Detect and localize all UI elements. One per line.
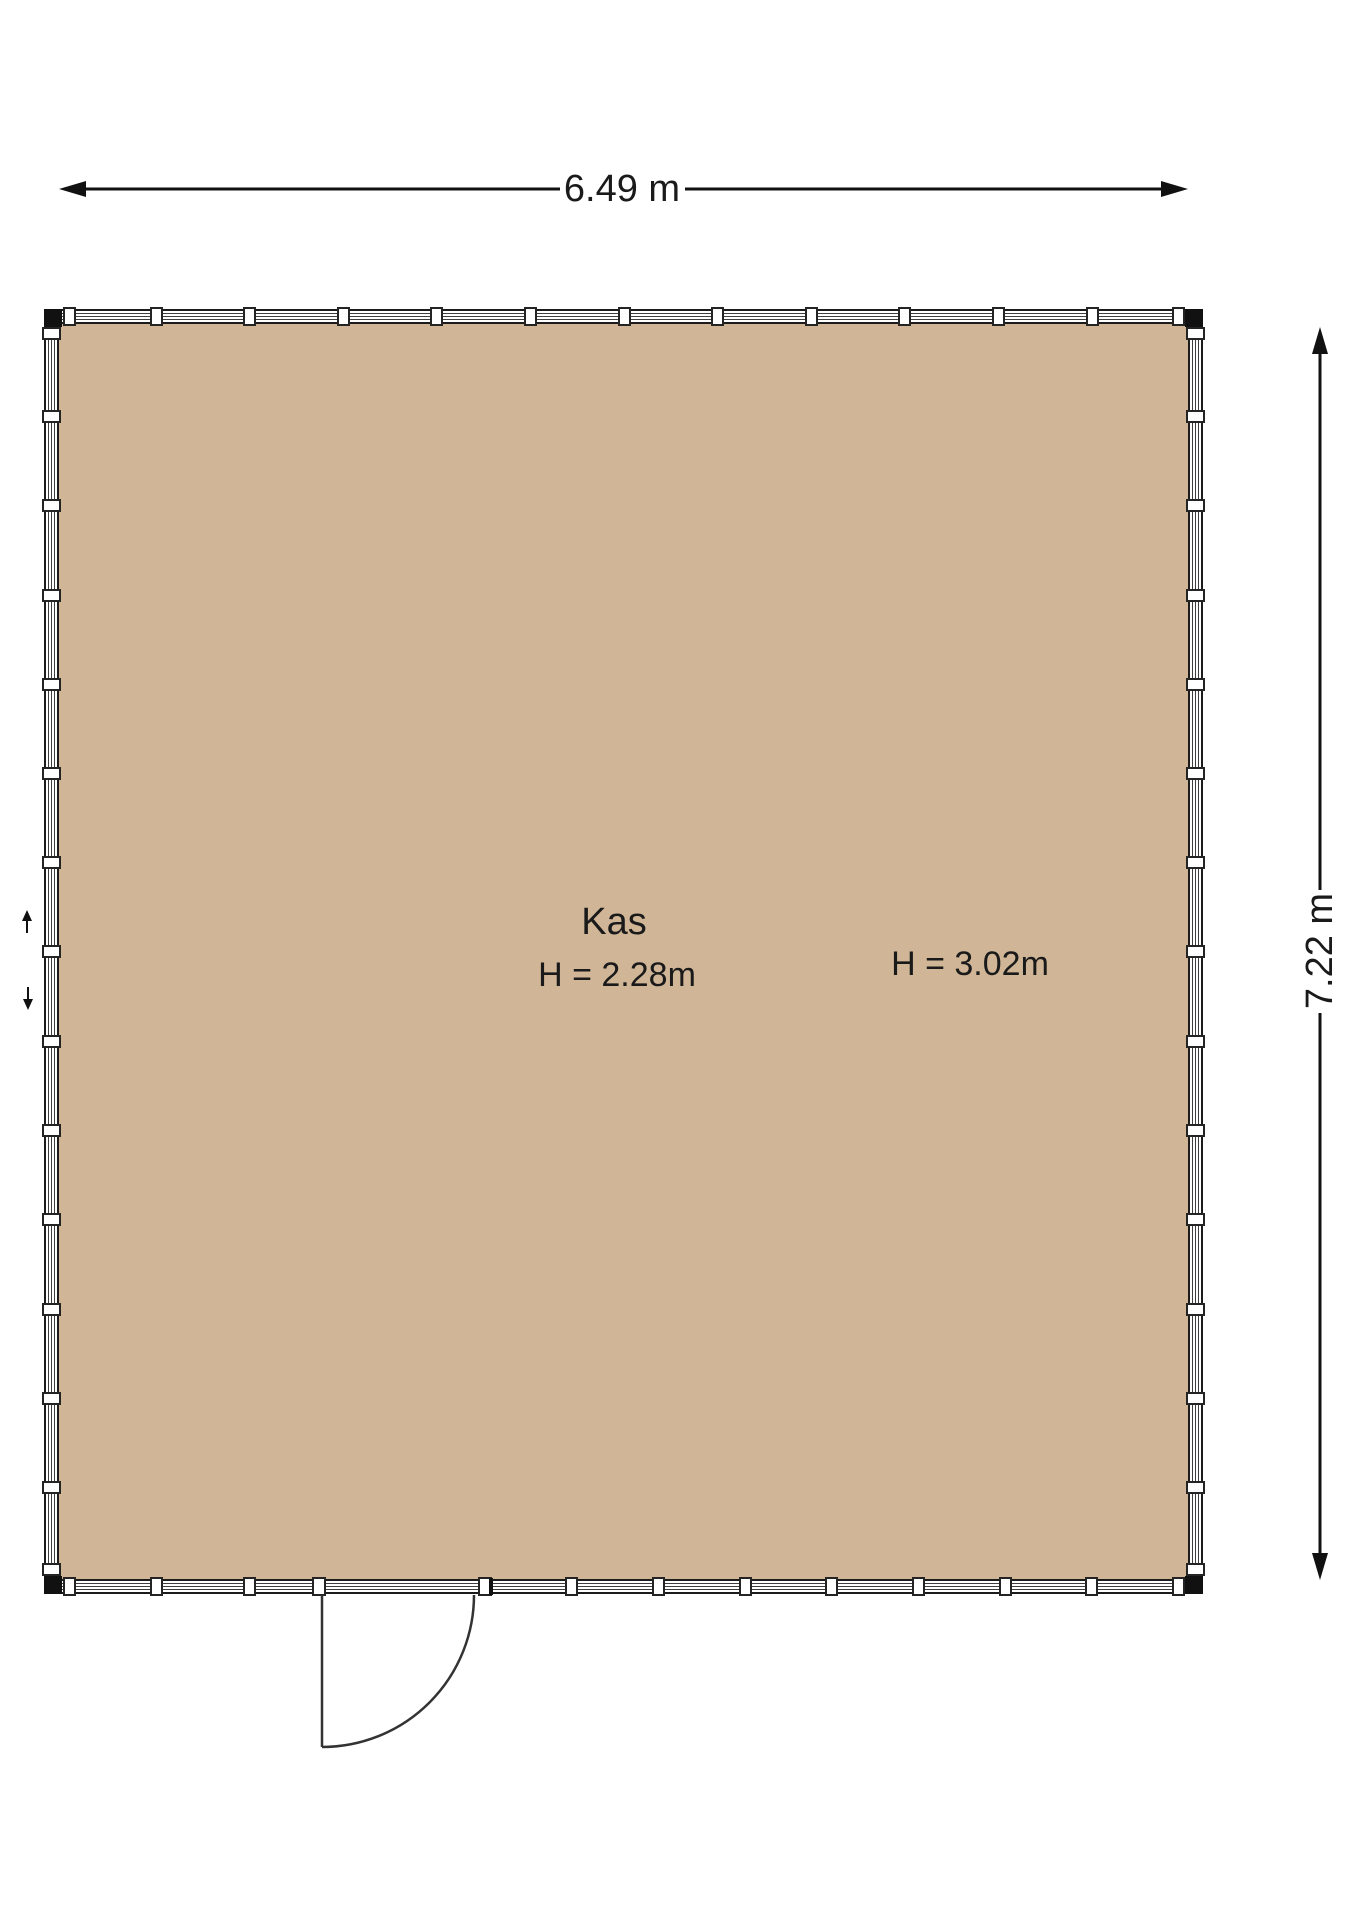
window-mullion bbox=[42, 1213, 61, 1226]
corner-post-ne bbox=[1185, 309, 1203, 327]
window-mullion bbox=[1186, 1303, 1205, 1316]
window-mullion bbox=[430, 307, 443, 326]
window-mullion bbox=[825, 1577, 838, 1596]
window-mullion bbox=[42, 1392, 61, 1405]
window-mullion bbox=[42, 678, 61, 691]
corner-post-se bbox=[1185, 1576, 1203, 1594]
window-mullion bbox=[243, 307, 256, 326]
window-mullion bbox=[337, 307, 350, 326]
window-mullion bbox=[63, 1577, 76, 1596]
window-mullion bbox=[711, 307, 724, 326]
window-mullion bbox=[42, 499, 61, 512]
window-mullion bbox=[1186, 678, 1205, 691]
window-mullion bbox=[999, 1577, 1012, 1596]
window-mullion bbox=[150, 307, 163, 326]
door-jamb-left bbox=[312, 1577, 326, 1596]
window-mullion bbox=[42, 589, 61, 602]
door-swing bbox=[322, 1595, 474, 1747]
window-mullion bbox=[1186, 1213, 1205, 1226]
window-mullion bbox=[618, 307, 631, 326]
window-mullion bbox=[898, 307, 911, 326]
window-mullion bbox=[42, 767, 61, 780]
width-dimension-label: 6.49 m bbox=[522, 168, 722, 210]
window-mullion bbox=[42, 1563, 61, 1576]
room-height-label-primary: H = 2.28m bbox=[517, 958, 717, 992]
corner-post-nw bbox=[44, 309, 62, 327]
window-mullion bbox=[1186, 589, 1205, 602]
arrow-up-icon bbox=[1312, 327, 1328, 354]
height-dimension-label: 7.22 m bbox=[1299, 851, 1341, 1051]
window-mullion bbox=[42, 1124, 61, 1137]
room-name-label: Kas bbox=[514, 901, 714, 943]
arrow-right-icon bbox=[1161, 181, 1188, 197]
window-mullion bbox=[1186, 767, 1205, 780]
floorplan-canvas: 6.49 m 7.22 m Kas H = 2.28m H = 3.02m bbox=[0, 0, 1358, 1920]
window-mullion bbox=[42, 856, 61, 869]
window-mullion bbox=[1172, 1577, 1185, 1596]
window-mullion bbox=[1186, 1563, 1205, 1576]
corner-post-sw bbox=[44, 1576, 62, 1594]
window-mullion bbox=[1186, 1392, 1205, 1405]
door-strike bbox=[489, 1578, 493, 1595]
window-mullion bbox=[42, 327, 61, 340]
window-mullion bbox=[652, 1577, 665, 1596]
window-mullion bbox=[42, 1481, 61, 1494]
small-arrow-down-icon bbox=[23, 999, 33, 1010]
window-mullion bbox=[1186, 499, 1205, 512]
window-mullion bbox=[912, 1577, 925, 1596]
window-mullion bbox=[1186, 410, 1205, 423]
window-mullion bbox=[1186, 856, 1205, 869]
window-mullion bbox=[805, 307, 818, 326]
window-mullion bbox=[1186, 1124, 1205, 1137]
vent-direction-arrows bbox=[22, 910, 33, 1010]
window-mullion bbox=[1186, 327, 1205, 340]
small-arrow-up-icon bbox=[22, 910, 32, 921]
window-mullion bbox=[42, 1035, 61, 1048]
window-mullion bbox=[42, 410, 61, 423]
window-mullion bbox=[1086, 307, 1099, 326]
arrow-down-icon bbox=[1312, 1553, 1328, 1580]
window-mullion bbox=[243, 1577, 256, 1596]
window-mullion bbox=[1186, 1035, 1205, 1048]
window-mullion bbox=[565, 1577, 578, 1596]
window-mullion bbox=[1186, 945, 1205, 958]
room-height-label-secondary: H = 3.02m bbox=[870, 947, 1070, 981]
window-mullion bbox=[1085, 1577, 1098, 1596]
window-mullion bbox=[1186, 1481, 1205, 1494]
window-mullion bbox=[524, 307, 537, 326]
window-mullion bbox=[739, 1577, 752, 1596]
window-mullion bbox=[150, 1577, 163, 1596]
window-mullion bbox=[992, 307, 1005, 326]
window-mullion bbox=[42, 1303, 61, 1316]
window-mullion bbox=[63, 307, 76, 326]
arrow-left-icon bbox=[59, 181, 86, 197]
wall-south bbox=[44, 1579, 1203, 1594]
window-mullion bbox=[42, 945, 61, 958]
window-mullion bbox=[1172, 307, 1185, 326]
